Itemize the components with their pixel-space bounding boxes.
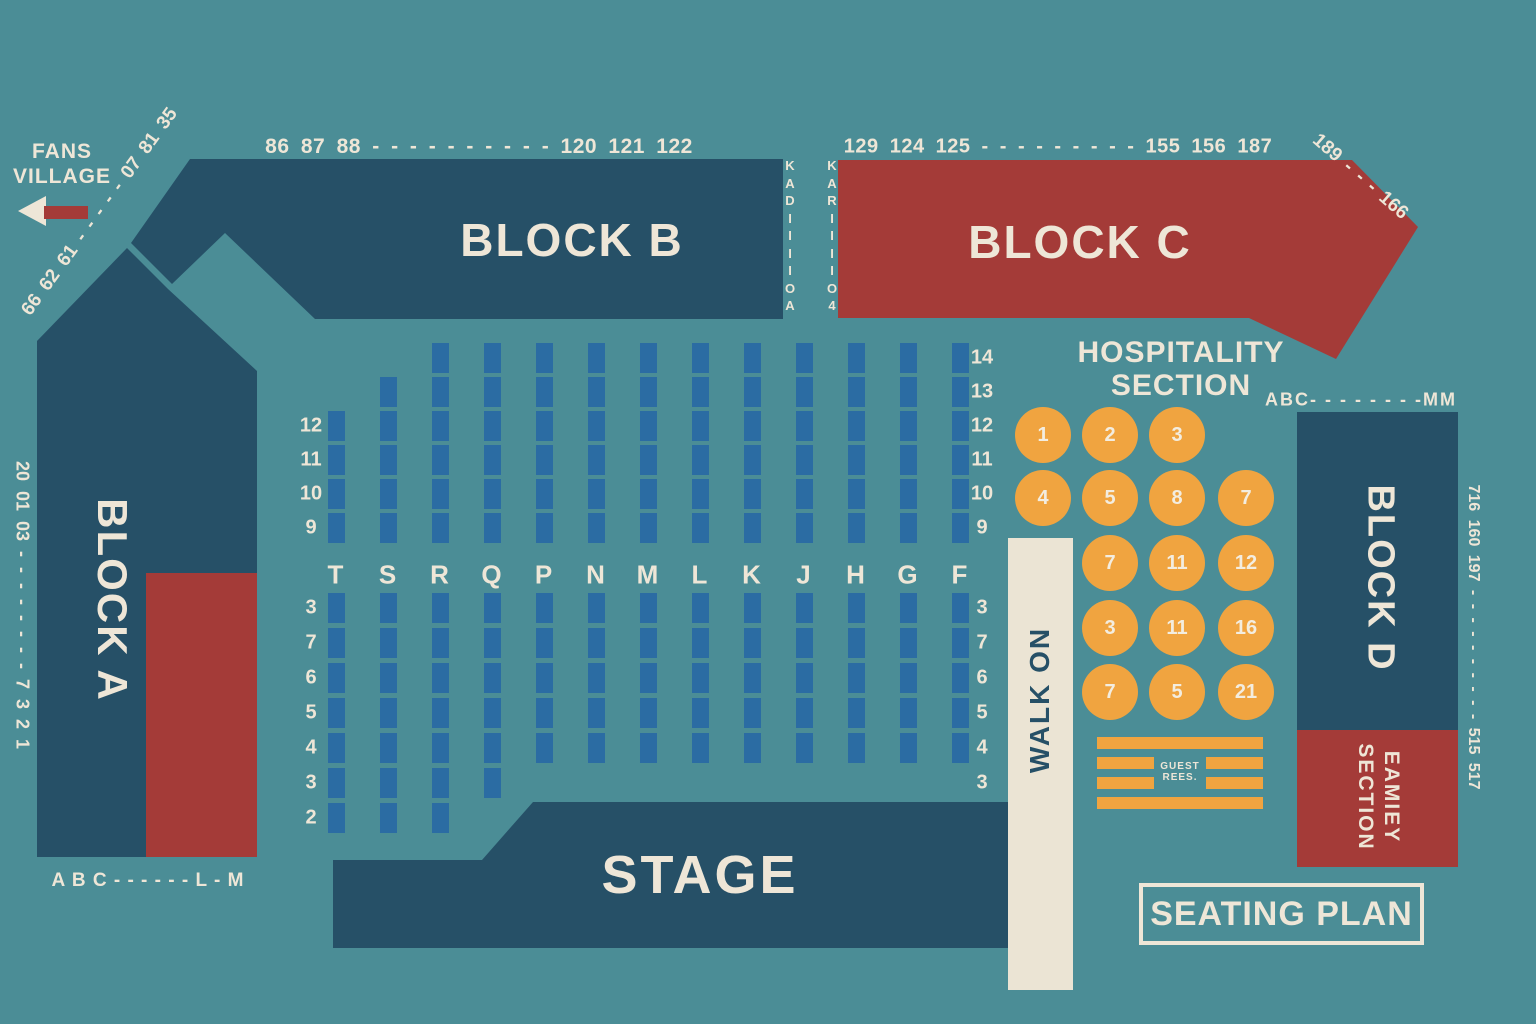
seat bbox=[484, 733, 501, 763]
seat-column-letter: K bbox=[742, 560, 762, 591]
seat bbox=[432, 513, 449, 543]
seat bbox=[796, 513, 813, 543]
seat bbox=[900, 343, 917, 373]
seat bbox=[900, 698, 917, 728]
seat bbox=[328, 513, 345, 543]
seat-column-letter: L bbox=[692, 560, 709, 591]
seat bbox=[588, 698, 605, 728]
seat bbox=[380, 479, 397, 509]
hospitality-title-line1: HOSPITALITY bbox=[1077, 336, 1284, 370]
seat bbox=[744, 377, 761, 407]
seat bbox=[744, 513, 761, 543]
seat bbox=[588, 445, 605, 475]
seat bbox=[848, 343, 865, 373]
hospitality-table: 12 bbox=[1218, 535, 1274, 591]
seat bbox=[588, 593, 605, 623]
block-c-top-numbers: 129 124 125 - - - - - - - - - 155 156 18… bbox=[844, 136, 1272, 159]
seat bbox=[484, 768, 501, 798]
seat bbox=[900, 377, 917, 407]
seat bbox=[640, 445, 657, 475]
row-label-right: 3 bbox=[976, 597, 987, 620]
seat bbox=[692, 445, 709, 475]
hospitality-table: 1 bbox=[1015, 407, 1071, 463]
seat bbox=[536, 698, 553, 728]
walk-on-label: WALK ON bbox=[1024, 627, 1056, 773]
seat bbox=[796, 445, 813, 475]
seat bbox=[900, 663, 917, 693]
seat bbox=[848, 628, 865, 658]
guest-stripe-mid2-left bbox=[1097, 777, 1154, 789]
hospitality-table: 5 bbox=[1082, 470, 1138, 526]
seat bbox=[536, 377, 553, 407]
seat bbox=[536, 479, 553, 509]
left-edge-vertical-numbers: 20 01 03 - - - - - - - - 7 3 2 1 bbox=[12, 461, 33, 749]
seat bbox=[692, 411, 709, 441]
seat bbox=[328, 593, 345, 623]
seat bbox=[692, 733, 709, 763]
hospitality-table: 16 bbox=[1218, 600, 1274, 656]
seat bbox=[588, 411, 605, 441]
seat bbox=[796, 411, 813, 441]
aisle-glyph: D bbox=[785, 192, 794, 210]
seat bbox=[744, 733, 761, 763]
seat bbox=[536, 343, 553, 373]
seat bbox=[952, 411, 969, 441]
hospitality-table: 21 bbox=[1218, 664, 1274, 720]
seat bbox=[692, 593, 709, 623]
row-label-left: 11 bbox=[300, 449, 321, 472]
aisle-glyph: O bbox=[827, 280, 837, 298]
seat bbox=[796, 593, 813, 623]
block-b-label: BLOCK B bbox=[460, 213, 684, 267]
seat bbox=[952, 593, 969, 623]
seat bbox=[328, 768, 345, 798]
seat bbox=[588, 733, 605, 763]
aisle-glyph: I bbox=[830, 227, 834, 245]
seat bbox=[588, 628, 605, 658]
fans-village-line1: FANS bbox=[32, 140, 92, 164]
seat bbox=[640, 698, 657, 728]
row-label-left: 3 bbox=[305, 597, 316, 620]
seat bbox=[536, 628, 553, 658]
seat bbox=[640, 513, 657, 543]
aisle-glyph: I bbox=[788, 210, 792, 228]
seat bbox=[432, 343, 449, 373]
seat bbox=[588, 377, 605, 407]
seat bbox=[484, 377, 501, 407]
seat bbox=[744, 628, 761, 658]
seat bbox=[796, 479, 813, 509]
seat bbox=[900, 445, 917, 475]
row-label-right: 9 bbox=[976, 517, 987, 540]
seat bbox=[484, 479, 501, 509]
row-label-right: 3 bbox=[976, 772, 987, 795]
seat bbox=[328, 663, 345, 693]
seat bbox=[380, 513, 397, 543]
row-label-left: 6 bbox=[305, 667, 316, 690]
row-label-left: 4 bbox=[305, 737, 316, 760]
row-label-right: 5 bbox=[976, 702, 987, 725]
seat bbox=[536, 445, 553, 475]
seat bbox=[848, 445, 865, 475]
seat bbox=[952, 377, 969, 407]
seat bbox=[328, 445, 345, 475]
fans-village-line2: VILLAGE bbox=[13, 165, 111, 189]
seat bbox=[432, 593, 449, 623]
guest-box-line2: REES. bbox=[1160, 772, 1199, 783]
seat bbox=[952, 698, 969, 728]
seat bbox=[328, 698, 345, 728]
aisle-glyph: A bbox=[785, 297, 794, 315]
seat bbox=[744, 663, 761, 693]
family-section-line2: SECTION bbox=[1352, 743, 1378, 850]
seat bbox=[640, 663, 657, 693]
guest-stripe-mid2-right bbox=[1206, 777, 1263, 789]
seat bbox=[380, 445, 397, 475]
seat bbox=[484, 445, 501, 475]
hospitality-title-line2: SECTION bbox=[1111, 369, 1251, 403]
seat bbox=[432, 445, 449, 475]
guest-stripe-top bbox=[1097, 737, 1263, 749]
seat bbox=[380, 628, 397, 658]
seat bbox=[640, 411, 657, 441]
seat bbox=[692, 663, 709, 693]
seat bbox=[744, 411, 761, 441]
aisle-glyph: A bbox=[827, 175, 836, 193]
stage-label: STAGE bbox=[601, 844, 798, 906]
seat bbox=[952, 445, 969, 475]
hospitality-table: 2 bbox=[1082, 407, 1138, 463]
seat bbox=[848, 377, 865, 407]
seat bbox=[900, 593, 917, 623]
seat bbox=[692, 628, 709, 658]
hospitality-table: 3 bbox=[1082, 600, 1138, 656]
row-label-right: 14 bbox=[971, 347, 993, 370]
seat bbox=[900, 479, 917, 509]
seat bbox=[640, 377, 657, 407]
row-label-left: 7 bbox=[305, 632, 316, 655]
row-label-right: 12 bbox=[971, 415, 993, 438]
row-label-right: 10 bbox=[971, 483, 993, 506]
seat-column-letter: N bbox=[586, 560, 606, 591]
aisle-glyph: A bbox=[785, 175, 794, 193]
seat-column-letter: Q bbox=[481, 560, 502, 591]
aisle-glyph: I bbox=[788, 245, 792, 263]
row-label-right: 6 bbox=[976, 667, 987, 690]
block-b-top-numbers: 86 87 88 - - - - - - - - - - 120 121 122 bbox=[265, 135, 693, 159]
family-section-line1: EAMIEY bbox=[1378, 743, 1404, 850]
seat bbox=[380, 593, 397, 623]
seat-column-letter: T bbox=[328, 560, 345, 591]
seating-plan-canvas: FANS VILLAGE 86 87 88 - - - - - - - - - … bbox=[0, 0, 1536, 1024]
seat-column-letter: J bbox=[796, 560, 811, 591]
seat bbox=[432, 479, 449, 509]
seat bbox=[848, 593, 865, 623]
row-label-left: 12 bbox=[300, 415, 322, 438]
family-section-label: EAMIEY SECTION bbox=[1352, 743, 1404, 850]
seat bbox=[900, 628, 917, 658]
seat bbox=[588, 343, 605, 373]
seat-column-letter: P bbox=[535, 560, 553, 591]
seat bbox=[328, 803, 345, 833]
seat bbox=[796, 377, 813, 407]
seat bbox=[588, 663, 605, 693]
seat bbox=[796, 343, 813, 373]
block-a-bottom-letters: A B C - - - - - - L - M bbox=[52, 870, 245, 892]
row-label-left: 10 bbox=[300, 483, 322, 506]
block-d-top-letters: ABC- - - - - - - -MM bbox=[1265, 390, 1457, 411]
seat bbox=[848, 513, 865, 543]
row-label-left: 9 bbox=[305, 517, 316, 540]
seat bbox=[432, 628, 449, 658]
seat bbox=[432, 803, 449, 833]
seat bbox=[536, 663, 553, 693]
seat bbox=[380, 768, 397, 798]
seat bbox=[796, 663, 813, 693]
row-label-left: 3 bbox=[305, 772, 316, 795]
seat bbox=[744, 479, 761, 509]
seat bbox=[432, 663, 449, 693]
seat bbox=[640, 343, 657, 373]
seat bbox=[380, 377, 397, 407]
hospitality-table: 7 bbox=[1218, 470, 1274, 526]
guest-stripe-bottom bbox=[1097, 797, 1263, 809]
seat bbox=[536, 513, 553, 543]
aisle-glyph: I bbox=[830, 210, 834, 228]
block-b-shape bbox=[131, 159, 783, 319]
guest-stripe-mid1-left bbox=[1097, 757, 1154, 769]
aisle-glyph: K bbox=[785, 157, 794, 175]
aisle-glyph: O bbox=[785, 280, 795, 298]
seat-column-letter: R bbox=[430, 560, 450, 591]
seat bbox=[744, 698, 761, 728]
aisle-glyph: I bbox=[830, 245, 834, 263]
seat bbox=[536, 593, 553, 623]
block-a-label: BLOCK A bbox=[88, 498, 136, 702]
hospitality-table: 3 bbox=[1149, 407, 1205, 463]
hospitality-table: 11 bbox=[1149, 535, 1205, 591]
block-d-right-vertical-numbers: 716 160 197 - - - - - - - - - - 515 517 bbox=[1464, 485, 1482, 790]
hospitality-table: 11 bbox=[1149, 600, 1205, 656]
guest-box-line1: GUEST bbox=[1160, 761, 1199, 772]
guest-box-label: GUEST REES. bbox=[1160, 761, 1199, 783]
seat-column-letter: G bbox=[897, 560, 918, 591]
seat bbox=[952, 343, 969, 373]
seat bbox=[848, 479, 865, 509]
seat-column-letter: S bbox=[379, 560, 397, 591]
seat bbox=[744, 445, 761, 475]
seating-plan-badge: SEATING PLAN bbox=[1139, 883, 1424, 945]
block-a-red-section bbox=[146, 573, 257, 857]
seating-plan-label: SEATING PLAN bbox=[1150, 895, 1413, 934]
seat bbox=[692, 698, 709, 728]
aisle-glyph: K bbox=[827, 157, 836, 175]
seat bbox=[536, 733, 553, 763]
row-label-right: 4 bbox=[976, 737, 987, 760]
seat bbox=[796, 698, 813, 728]
seat bbox=[796, 733, 813, 763]
seat bbox=[432, 377, 449, 407]
seat bbox=[432, 411, 449, 441]
seat bbox=[640, 733, 657, 763]
seat bbox=[380, 663, 397, 693]
seat bbox=[432, 733, 449, 763]
seat bbox=[588, 479, 605, 509]
seat bbox=[796, 628, 813, 658]
seat bbox=[484, 593, 501, 623]
seat bbox=[588, 513, 605, 543]
aisle-glyph: I bbox=[830, 262, 834, 280]
block-c-label: BLOCK C bbox=[968, 215, 1192, 269]
seat bbox=[848, 663, 865, 693]
seat bbox=[848, 411, 865, 441]
seat bbox=[484, 343, 501, 373]
seat bbox=[380, 698, 397, 728]
aisle-glyph: I bbox=[788, 262, 792, 280]
seat bbox=[952, 479, 969, 509]
row-label-left: 5 bbox=[305, 702, 316, 725]
aisle-glyph: R bbox=[827, 192, 836, 210]
seat-column-letter: F bbox=[952, 560, 969, 591]
seat bbox=[692, 479, 709, 509]
row-label-left: 2 bbox=[305, 807, 316, 830]
row-label-right: 11 bbox=[971, 449, 992, 472]
row-label-right: 13 bbox=[971, 381, 993, 404]
seat bbox=[640, 593, 657, 623]
hospitality-table: 4 bbox=[1015, 470, 1071, 526]
seat bbox=[952, 513, 969, 543]
seat bbox=[692, 513, 709, 543]
seat bbox=[744, 343, 761, 373]
seat bbox=[328, 411, 345, 441]
seat bbox=[380, 733, 397, 763]
hospitality-table: 7 bbox=[1082, 535, 1138, 591]
seat-column-letter: M bbox=[637, 560, 660, 591]
hospitality-table: 5 bbox=[1149, 664, 1205, 720]
hospitality-table: 8 bbox=[1149, 470, 1205, 526]
seat bbox=[952, 628, 969, 658]
seat bbox=[328, 479, 345, 509]
seat bbox=[640, 479, 657, 509]
seat bbox=[900, 733, 917, 763]
aisle-column-1: KADIIIIOA bbox=[785, 157, 795, 315]
seat bbox=[484, 628, 501, 658]
seat bbox=[432, 698, 449, 728]
row-label-right: 7 bbox=[976, 632, 987, 655]
aisle-glyph: 4 bbox=[828, 297, 835, 315]
left-arrow-icon bbox=[18, 196, 46, 226]
aisle-column-2: KARIIIIO4 bbox=[827, 157, 837, 315]
seat bbox=[848, 733, 865, 763]
seat bbox=[328, 733, 345, 763]
seat bbox=[484, 411, 501, 441]
seat bbox=[744, 593, 761, 623]
seat bbox=[328, 628, 345, 658]
seat bbox=[484, 698, 501, 728]
seat bbox=[952, 733, 969, 763]
guest-stripe-mid1-right bbox=[1206, 757, 1263, 769]
seat bbox=[536, 411, 553, 441]
block-d-label: BLOCK D bbox=[1359, 484, 1402, 671]
hospitality-table: 7 bbox=[1082, 664, 1138, 720]
seat bbox=[484, 513, 501, 543]
seat bbox=[380, 803, 397, 833]
seat bbox=[952, 663, 969, 693]
seat bbox=[640, 628, 657, 658]
seat bbox=[432, 768, 449, 798]
seat bbox=[900, 513, 917, 543]
seat-column-letter: H bbox=[846, 560, 866, 591]
seat bbox=[848, 698, 865, 728]
seat bbox=[692, 343, 709, 373]
seat bbox=[900, 411, 917, 441]
seat bbox=[692, 377, 709, 407]
seat bbox=[380, 411, 397, 441]
aisle-glyph: I bbox=[788, 227, 792, 245]
seat bbox=[484, 663, 501, 693]
